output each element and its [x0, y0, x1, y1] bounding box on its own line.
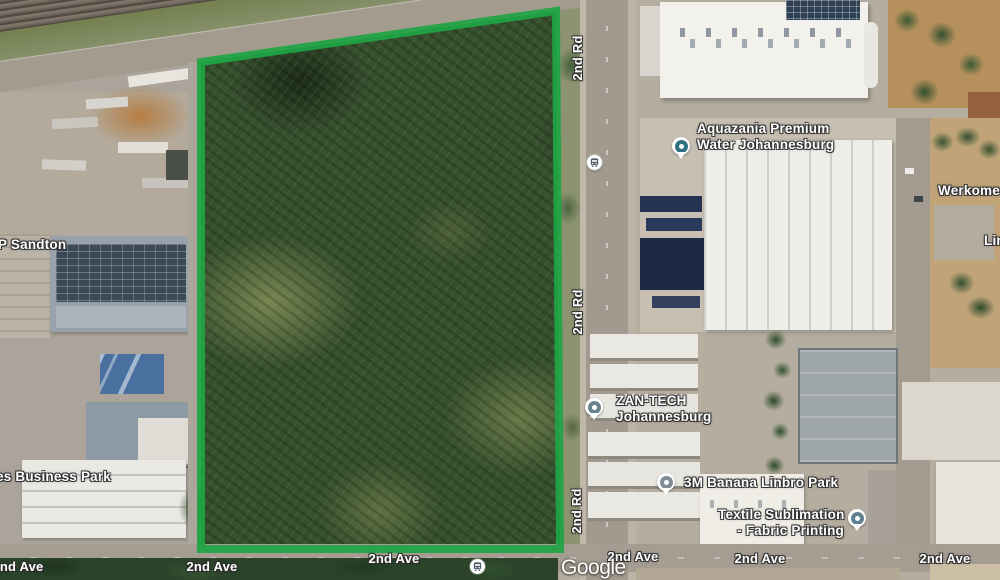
solar-panels [56, 244, 186, 302]
place-pin-icon[interactable] [848, 509, 866, 527]
road-label-2nd-rd: 2nd Rd [570, 282, 586, 342]
tree-row [756, 326, 800, 496]
truck-trailer [640, 196, 702, 212]
bus-glyph [589, 157, 600, 168]
truck [42, 159, 86, 171]
poi-label-p-sandton[interactable]: P Sandton [0, 237, 66, 253]
pin-dot [660, 476, 673, 489]
road-label-2nd-ave: 2nd Ave [180, 559, 244, 575]
bus-stop-icon[interactable] [470, 559, 485, 574]
poi-label-aquazania[interactable]: Aquazania Premium Water Johannesburg [697, 121, 834, 153]
industrial-unit [588, 432, 700, 459]
skylights [690, 39, 856, 48]
road-side [896, 118, 930, 560]
poi-label-line: Johannesburg [616, 409, 711, 425]
building [640, 6, 660, 76]
road-label-2nd-ave: 2nd Ave [0, 559, 50, 575]
building [868, 470, 896, 548]
industrial-unit [588, 492, 700, 521]
poi-label-line: Textile Sublimation [718, 507, 844, 523]
road-label-2nd-rd: 2nd Rd [570, 28, 586, 88]
truck-trailer [646, 218, 702, 231]
truck-trailer [652, 296, 700, 308]
road-label-2nd-ave: 2nd Ave [913, 551, 977, 567]
poi-label-line: Aquazania Premium [697, 121, 834, 137]
road-label-2nd-rd: 2nd Rd [569, 481, 585, 541]
building [902, 382, 1000, 460]
poi-label-line: - Fabric Printing [718, 523, 844, 539]
dirt-track [188, 62, 198, 548]
car [914, 196, 923, 202]
silo [864, 22, 878, 88]
industrial-unit [590, 364, 698, 391]
pin-dot [851, 512, 864, 525]
place-pin-icon[interactable] [672, 137, 690, 155]
ground-south [636, 568, 900, 580]
pin-dot [588, 401, 601, 414]
bus-glyph [472, 561, 483, 572]
industrial-unit [590, 334, 698, 361]
road-label-2nd-ave: 2nd Ave [728, 551, 792, 567]
bus-stop-icon[interactable] [587, 155, 602, 170]
blue-canopy [100, 354, 164, 394]
building [936, 462, 1000, 548]
map-canvas[interactable]: 2nd Rd 2nd Rd 2nd Rd 2nd Ave 2nd Ave 2nd… [0, 0, 1000, 580]
poi-label-3m-banana[interactable]: 3M Banana Linbro Park [684, 475, 838, 491]
building [798, 348, 898, 464]
solar-panels [786, 0, 860, 20]
place-pin-icon[interactable] [585, 398, 603, 416]
car [905, 168, 914, 174]
poi-label-line: ZAN-TECH [616, 393, 711, 409]
pin-dot [675, 140, 688, 153]
truck-trailer [640, 238, 704, 290]
poi-label-werkome[interactable]: Werkome [938, 183, 1000, 199]
truck [118, 142, 168, 153]
poi-label-line: Water Johannesburg [697, 137, 834, 153]
poi-label-business-park[interactable]: es Business Park [0, 469, 111, 485]
building [138, 418, 190, 464]
tree-cluster [928, 122, 1000, 172]
tree-cluster [945, 262, 1000, 332]
place-pin-icon[interactable] [657, 473, 675, 491]
roof-section [56, 306, 186, 328]
google-logo[interactable]: Google [561, 556, 626, 580]
road-label-2nd-ave: 2nd Ave [362, 551, 426, 567]
poi-label-textile[interactable]: Textile Sublimation - Fabric Printing [718, 507, 844, 539]
dirt-patch [88, 84, 192, 148]
skylights [680, 28, 856, 37]
poi-label-zantech[interactable]: ZAN-TECH Johannesburg [616, 393, 711, 425]
poi-label-lin[interactable]: Lin [984, 233, 1000, 249]
warehouse-roof [704, 140, 892, 330]
